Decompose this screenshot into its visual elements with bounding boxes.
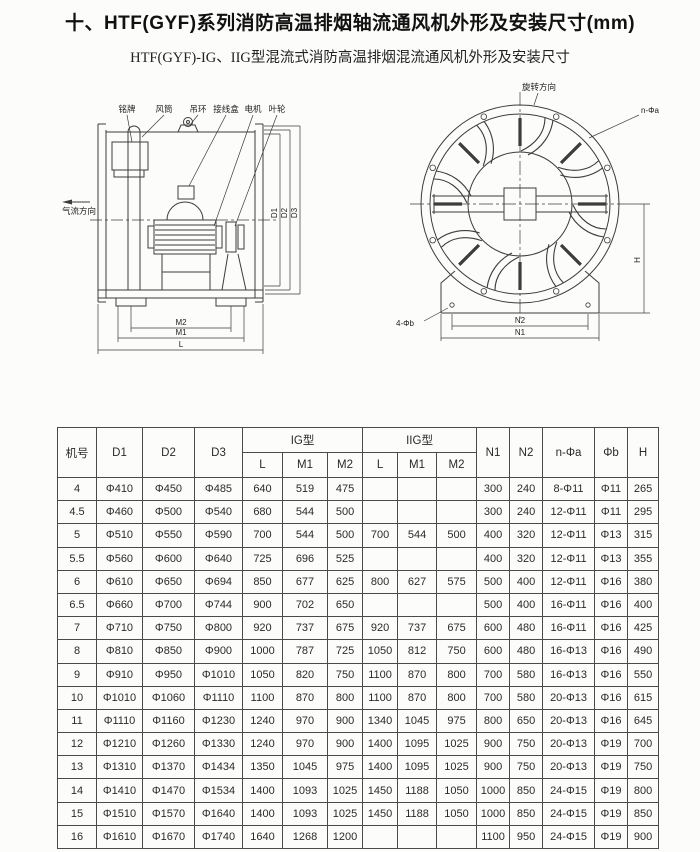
table-cell: 1400	[363, 756, 398, 779]
table-cell: 600	[477, 617, 510, 640]
table-cell: 800	[437, 686, 477, 709]
table-cell: 650	[328, 593, 363, 616]
table-cell: 12-Φ11	[543, 570, 595, 593]
table-cell: 850	[243, 570, 283, 593]
table-cell: 500	[437, 524, 477, 547]
table-cell: 1050	[437, 779, 477, 802]
table-cell: Φ600	[143, 547, 195, 570]
table-cell: 1100	[243, 686, 283, 709]
table-cell: 544	[283, 524, 328, 547]
table-cell: 1450	[363, 779, 398, 802]
table-cell: 800	[328, 686, 363, 709]
table-cell: 4.5	[58, 501, 97, 524]
table-cell: 500	[328, 524, 363, 547]
table-cell	[363, 825, 398, 848]
motor-endcap-right	[216, 226, 222, 248]
table-cell: Φ700	[143, 593, 195, 616]
table-cell: 20-Φ13	[543, 756, 595, 779]
sub-header-iig-m2: M2	[437, 453, 477, 478]
spec-table: 机号 D1 D2 D3 IG型 IIG型 N1 N2 n-Φa Φb H L M…	[57, 427, 659, 849]
table-cell: 1350	[243, 756, 283, 779]
table-cell: 320	[510, 524, 543, 547]
table-cell: Φ1230	[195, 709, 243, 732]
table-cell: 16-Φ13	[543, 640, 595, 663]
table-cell: 480	[510, 640, 543, 663]
table-cell: Φ1410	[97, 779, 143, 802]
table-cell: 6	[58, 570, 97, 593]
dim-label-m2: M2	[175, 318, 187, 327]
table-cell	[437, 825, 477, 848]
foot-right	[216, 298, 246, 306]
table-cell: 820	[283, 663, 328, 686]
table-cell: Φ900	[195, 640, 243, 663]
table-cell: Φ850	[143, 640, 195, 663]
table-row: 4Φ410Φ450Φ4856405194753002408-Φ11Φ11265	[58, 478, 659, 501]
sub-header-iig-m1: M1	[398, 453, 437, 478]
motor-endcap-left	[148, 226, 154, 248]
table-cell: 627	[398, 570, 437, 593]
table-cell: Φ1740	[195, 825, 243, 848]
table-cell: 700	[628, 733, 659, 756]
table-cell: 1240	[243, 733, 283, 756]
table-cell	[363, 478, 398, 501]
table-cell: Φ1510	[97, 802, 143, 825]
table-cell: Φ11	[595, 478, 628, 501]
table-cell: 677	[283, 570, 328, 593]
table-cell: Φ810	[97, 640, 143, 663]
rotation-leader	[534, 93, 538, 105]
table-cell: 1100	[363, 686, 398, 709]
table-cell: Φ410	[97, 478, 143, 501]
table-cell: 970	[283, 733, 328, 756]
table-cell: 1095	[398, 733, 437, 756]
table-cell: Φ950	[143, 663, 195, 686]
table-cell: 600	[477, 640, 510, 663]
dim-label-l: L	[179, 340, 184, 349]
casing-seam	[128, 126, 140, 290]
sub-header-ig-l: L	[243, 453, 283, 478]
table-cell: 580	[510, 663, 543, 686]
table-cell: 20-Φ13	[543, 686, 595, 709]
table-cell: 750	[628, 756, 659, 779]
col-header-phib: Φb	[595, 428, 628, 478]
table-cell: 1093	[283, 802, 328, 825]
table-cell: 300	[477, 501, 510, 524]
col-header-d2: D2	[143, 428, 195, 478]
base-plate	[98, 290, 263, 298]
table-cell: 870	[398, 663, 437, 686]
table-cell: 380	[628, 570, 659, 593]
col-header-model: 机号	[58, 428, 97, 478]
table-cell: 975	[328, 756, 363, 779]
table-cell: 12-Φ11	[543, 524, 595, 547]
foot-hole-right	[586, 303, 590, 307]
table-cell: 1400	[243, 779, 283, 802]
table-cell: Φ1370	[143, 756, 195, 779]
table-cell	[363, 547, 398, 570]
catalog-page: 十、HTF(GYF)系列消防高温排烟轴流通风机外形及安装尺寸(mm) HTF(G…	[0, 0, 700, 852]
table-cell: 16-Φ11	[543, 617, 595, 640]
table-cell: 475	[328, 478, 363, 501]
col-header-n-phia: n-Φa	[543, 428, 595, 478]
table-cell: 850	[510, 802, 543, 825]
dim-label-d2: D2	[280, 207, 289, 218]
table-cell: 1340	[363, 709, 398, 732]
table-row: 14Φ1410Φ1470Φ153414001093102514501188105…	[58, 779, 659, 802]
table-cell: 800	[437, 663, 477, 686]
table-cell: Φ540	[195, 501, 243, 524]
table-cell: 315	[628, 524, 659, 547]
centerlines	[410, 92, 630, 320]
table-cell: Φ19	[595, 802, 628, 825]
table-cell: 500	[477, 570, 510, 593]
table-cell: 24-Φ15	[543, 779, 595, 802]
table-cell: 575	[437, 570, 477, 593]
table-cell: 750	[510, 756, 543, 779]
table-cell: 8	[58, 640, 97, 663]
table-cell: 20-Φ13	[543, 709, 595, 732]
flange-left	[98, 124, 106, 302]
table-cell: 12-Φ11	[543, 501, 595, 524]
table-row: 12Φ1210Φ1260Φ133012409709001400109510259…	[58, 733, 659, 756]
table-cell: 850	[510, 779, 543, 802]
table-cell: 725	[328, 640, 363, 663]
table-row: 9Φ910Φ950Φ101010508207501100870800700580…	[58, 663, 659, 686]
table-cell: Φ500	[143, 501, 195, 524]
table-cell: Φ1610	[97, 825, 143, 848]
spec-table-container: 机号 D1 D2 D3 IG型 IIG型 N1 N2 n-Φa Φb H L M…	[57, 427, 659, 849]
table-cell	[437, 547, 477, 570]
table-cell: Φ16	[595, 686, 628, 709]
table-cell: Φ1210	[97, 733, 143, 756]
col-header-h: H	[628, 428, 659, 478]
table-cell: 700	[363, 524, 398, 547]
table-row: 8Φ810Φ850Φ900100078772510508127506004801…	[58, 640, 659, 663]
table-cell	[363, 593, 398, 616]
table-cell: 702	[283, 593, 328, 616]
table-cell: 900	[477, 733, 510, 756]
table-cell: 1050	[363, 640, 398, 663]
table-cell: 900	[243, 593, 283, 616]
table-cell: 295	[628, 501, 659, 524]
table-cell: 645	[628, 709, 659, 732]
part-label-impeller: 叶轮	[268, 104, 286, 114]
table-cell: 1000	[477, 802, 510, 825]
table-cell: 14	[58, 779, 97, 802]
table-cell: 10	[58, 686, 97, 709]
part-label-casing: 风筒	[155, 104, 172, 114]
table-cell: Φ485	[195, 478, 243, 501]
table-cell: 265	[628, 478, 659, 501]
table-cell: Φ1640	[195, 802, 243, 825]
header-row-top: 机号 D1 D2 D3 IG型 IIG型 N1 N2 n-Φa Φb H	[58, 428, 659, 453]
lifting-ring-hole	[187, 121, 190, 124]
table-cell: 900	[628, 825, 659, 848]
table-cell: Φ744	[195, 593, 243, 616]
table-cell: 800	[628, 779, 659, 802]
table-cell: Φ11	[595, 501, 628, 524]
table-cell: 12-Φ11	[543, 547, 595, 570]
table-cell: 544	[398, 524, 437, 547]
table-cell: Φ660	[97, 593, 143, 616]
table-row: 5Φ510Φ550Φ59070054450070054450040032012-…	[58, 524, 659, 547]
flange-right	[255, 124, 263, 302]
table-cell: 320	[510, 547, 543, 570]
table-cell: Φ16	[595, 617, 628, 640]
table-cell: 8-Φ11	[543, 478, 595, 501]
table-cell: 4	[58, 478, 97, 501]
table-row: 4.5Φ460Φ500Φ54068054450030024012-Φ11Φ112…	[58, 501, 659, 524]
table-cell: Φ1570	[143, 802, 195, 825]
table-cell: 480	[510, 617, 543, 640]
table-row: 16Φ1610Φ1670Φ1740164012681200110095024-Φ…	[58, 825, 659, 848]
table-cell: 1000	[243, 640, 283, 663]
table-cell: 400	[510, 593, 543, 616]
table-cell: 24-Φ15	[543, 802, 595, 825]
table-cell: Φ1110	[97, 709, 143, 732]
table-cell: Φ13	[595, 547, 628, 570]
airflow-arrowhead	[62, 200, 72, 205]
table-row: 10Φ1010Φ1060Φ111011008708001100870800700…	[58, 686, 659, 709]
table-cell: 1045	[398, 709, 437, 732]
table-cell: 13	[58, 756, 97, 779]
dim-label-n2: N2	[515, 316, 526, 325]
table-cell: 9	[58, 663, 97, 686]
table-cell: Φ550	[143, 524, 195, 547]
table-cell: Φ460	[97, 501, 143, 524]
motor-dome	[167, 202, 203, 220]
table-cell: 750	[437, 640, 477, 663]
table-cell: Φ1260	[143, 733, 195, 756]
spec-table-header: 机号 D1 D2 D3 IG型 IIG型 N1 N2 n-Φa Φb H L M…	[58, 428, 659, 478]
pedestal	[162, 254, 246, 290]
table-cell: 11	[58, 709, 97, 732]
col-header-n2: N2	[510, 428, 543, 478]
table-cell: 787	[283, 640, 328, 663]
table-cell: 1400	[363, 733, 398, 756]
table-cell: 900	[328, 709, 363, 732]
table-cell: 16	[58, 825, 97, 848]
table-cell: Φ16	[595, 709, 628, 732]
sub-header-ig-m1: M1	[283, 453, 328, 478]
table-cell: Φ16	[595, 570, 628, 593]
table-cell: 240	[510, 501, 543, 524]
col-header-n1: N1	[477, 428, 510, 478]
col-header-d1: D1	[97, 428, 143, 478]
table-cell: 544	[283, 501, 328, 524]
table-row: 15Φ1510Φ1570Φ164014001093102514501188105…	[58, 802, 659, 825]
table-row: 5.5Φ560Φ600Φ64072569652540032012-Φ11Φ133…	[58, 547, 659, 570]
flange-holes-leader	[589, 115, 639, 138]
table-cell: 16-Φ11	[543, 593, 595, 616]
table-cell: 16-Φ13	[543, 663, 595, 686]
table-cell: 700	[477, 663, 510, 686]
table-cell: 490	[628, 640, 659, 663]
table-cell: 7	[58, 617, 97, 640]
table-cell: Φ1330	[195, 733, 243, 756]
part-label-motor: 电机	[244, 104, 262, 114]
table-cell: 550	[628, 663, 659, 686]
table-cell: 525	[328, 547, 363, 570]
dim-label-d3: D3	[290, 207, 299, 218]
table-cell: 870	[398, 686, 437, 709]
table-cell: 675	[328, 617, 363, 640]
table-cell: Φ910	[97, 663, 143, 686]
table-cell: 650	[510, 709, 543, 732]
table-cell: 580	[510, 686, 543, 709]
table-cell: 500	[328, 501, 363, 524]
col-header-ig: IG型	[243, 428, 363, 453]
table-cell: Φ560	[97, 547, 143, 570]
table-cell: 1450	[363, 802, 398, 825]
table-row: 11Φ1110Φ1160Φ123012409709001340104597580…	[58, 709, 659, 732]
table-cell: 800	[477, 709, 510, 732]
table-cell: Φ16	[595, 663, 628, 686]
table-cell: 1188	[398, 802, 437, 825]
table-cell	[398, 547, 437, 570]
motor-fins	[155, 225, 215, 250]
table-cell: 1095	[398, 756, 437, 779]
spec-table-body: 4Φ410Φ450Φ4856405194753002408-Φ11Φ112654…	[58, 478, 659, 849]
table-cell: 1100	[363, 663, 398, 686]
table-cell: Φ450	[143, 478, 195, 501]
table-cell: Φ1010	[97, 686, 143, 709]
table-cell: 400	[477, 547, 510, 570]
col-header-d3: D3	[195, 428, 243, 478]
table-cell: 500	[477, 593, 510, 616]
table-cell: Φ1434	[195, 756, 243, 779]
junction-box	[178, 186, 194, 199]
table-cell: 696	[283, 547, 328, 570]
nameplate	[112, 142, 148, 170]
side-view-drawing: 铭牌 风筒 吊环 接线盒 电机 叶轮 气流方向 D1 D2 D3 M2 M1 L	[28, 80, 373, 380]
table-cell: Φ650	[143, 570, 195, 593]
table-cell: 519	[283, 478, 328, 501]
table-row: 13Φ1310Φ1370Φ143413501045975140010951025…	[58, 756, 659, 779]
table-cell: 400	[628, 593, 659, 616]
table-cell: 900	[328, 733, 363, 756]
foot-left	[116, 298, 146, 306]
foot-holes-leader	[424, 308, 448, 321]
table-cell: 900	[477, 756, 510, 779]
rotation-direction-label: 旋转方向	[522, 82, 556, 92]
dim-label-m1: M1	[175, 328, 187, 337]
flange-holes-label: n-Φa	[641, 106, 659, 115]
table-cell: Φ1310	[97, 756, 143, 779]
table-cell: Φ750	[143, 617, 195, 640]
part-label-nameplate: 铭牌	[118, 104, 136, 114]
impeller-blade-edge	[238, 225, 244, 249]
table-cell: Φ610	[97, 570, 143, 593]
table-cell: 1050	[437, 802, 477, 825]
page-title: 十、HTF(GYF)系列消防高温排烟轴流通风机外形及安装尺寸(mm)	[0, 8, 700, 35]
table-cell: 300	[477, 478, 510, 501]
table-cell: 400	[477, 524, 510, 547]
table-cell: Φ1110	[195, 686, 243, 709]
table-cell: 240	[510, 478, 543, 501]
part-label-lifting-ring: 吊环	[189, 104, 207, 114]
table-cell: 5	[58, 524, 97, 547]
table-row: 6.5Φ660Φ700Φ74490070265050040016-Φ11Φ164…	[58, 593, 659, 616]
table-cell: 1268	[283, 825, 328, 848]
table-cell: Φ19	[595, 825, 628, 848]
table-cell: 870	[283, 686, 328, 709]
table-cell: Φ590	[195, 524, 243, 547]
table-cell: 15	[58, 802, 97, 825]
table-cell: 1025	[328, 802, 363, 825]
table-cell	[398, 501, 437, 524]
table-cell: 6.5	[58, 593, 97, 616]
table-cell	[437, 478, 477, 501]
table-row: 6Φ610Φ650Φ69485067762580062757550040012-…	[58, 570, 659, 593]
h-dim-line	[599, 204, 650, 313]
table-row: 7Φ710Φ750Φ80092073767592073767560048016-…	[58, 617, 659, 640]
table-cell: 1200	[328, 825, 363, 848]
col-header-iig: IIG型	[363, 428, 477, 453]
table-cell: 1240	[243, 709, 283, 732]
table-cell: 20-Φ13	[543, 733, 595, 756]
table-cell: 920	[363, 617, 398, 640]
table-cell: Φ13	[595, 524, 628, 547]
part-label-junction-box: 接线盒	[213, 104, 239, 114]
table-cell: 1640	[243, 825, 283, 848]
table-cell: 5.5	[58, 547, 97, 570]
table-cell: 950	[510, 825, 543, 848]
table-cell: Φ694	[195, 570, 243, 593]
table-cell: Φ16	[595, 640, 628, 663]
table-cell: Φ640	[195, 547, 243, 570]
page-subtitle: HTF(GYF)-IG、IIG型混流式消防高温排烟混流通风机外形及安装尺寸	[0, 46, 700, 67]
table-cell	[398, 593, 437, 616]
table-cell: 800	[363, 570, 398, 593]
dim-label-d1: D1	[270, 207, 279, 218]
airflow-direction-label: 气流方向	[62, 206, 96, 216]
table-cell: 850	[628, 802, 659, 825]
table-cell: Φ1060	[143, 686, 195, 709]
table-cell: 750	[510, 733, 543, 756]
table-cell: Φ1534	[195, 779, 243, 802]
table-cell: Φ1470	[143, 779, 195, 802]
table-cell: 625	[328, 570, 363, 593]
table-cell: 24-Φ15	[543, 825, 595, 848]
table-cell: 675	[437, 617, 477, 640]
table-cell: 12	[58, 733, 97, 756]
table-cell: 920	[243, 617, 283, 640]
table-cell: 725	[243, 547, 283, 570]
dim-label-h: H	[633, 257, 642, 263]
table-cell	[398, 825, 437, 848]
table-cell: 680	[243, 501, 283, 524]
table-cell: 1188	[398, 779, 437, 802]
table-cell: Φ19	[595, 779, 628, 802]
table-cell: 812	[398, 640, 437, 663]
table-cell: Φ710	[97, 617, 143, 640]
dim-label-n1: N1	[515, 328, 526, 337]
table-cell: 1400	[243, 802, 283, 825]
table-cell: Φ800	[195, 617, 243, 640]
table-cell: 737	[283, 617, 328, 640]
impeller-hub	[226, 222, 236, 252]
table-cell: 750	[328, 663, 363, 686]
table-cell: 615	[628, 686, 659, 709]
table-cell: 1093	[283, 779, 328, 802]
table-cell: Φ1160	[143, 709, 195, 732]
table-cell: 975	[437, 709, 477, 732]
table-cell: 1100	[477, 825, 510, 848]
table-cell: 737	[398, 617, 437, 640]
table-cell: Φ16	[595, 593, 628, 616]
table-cell: Φ1010	[195, 663, 243, 686]
